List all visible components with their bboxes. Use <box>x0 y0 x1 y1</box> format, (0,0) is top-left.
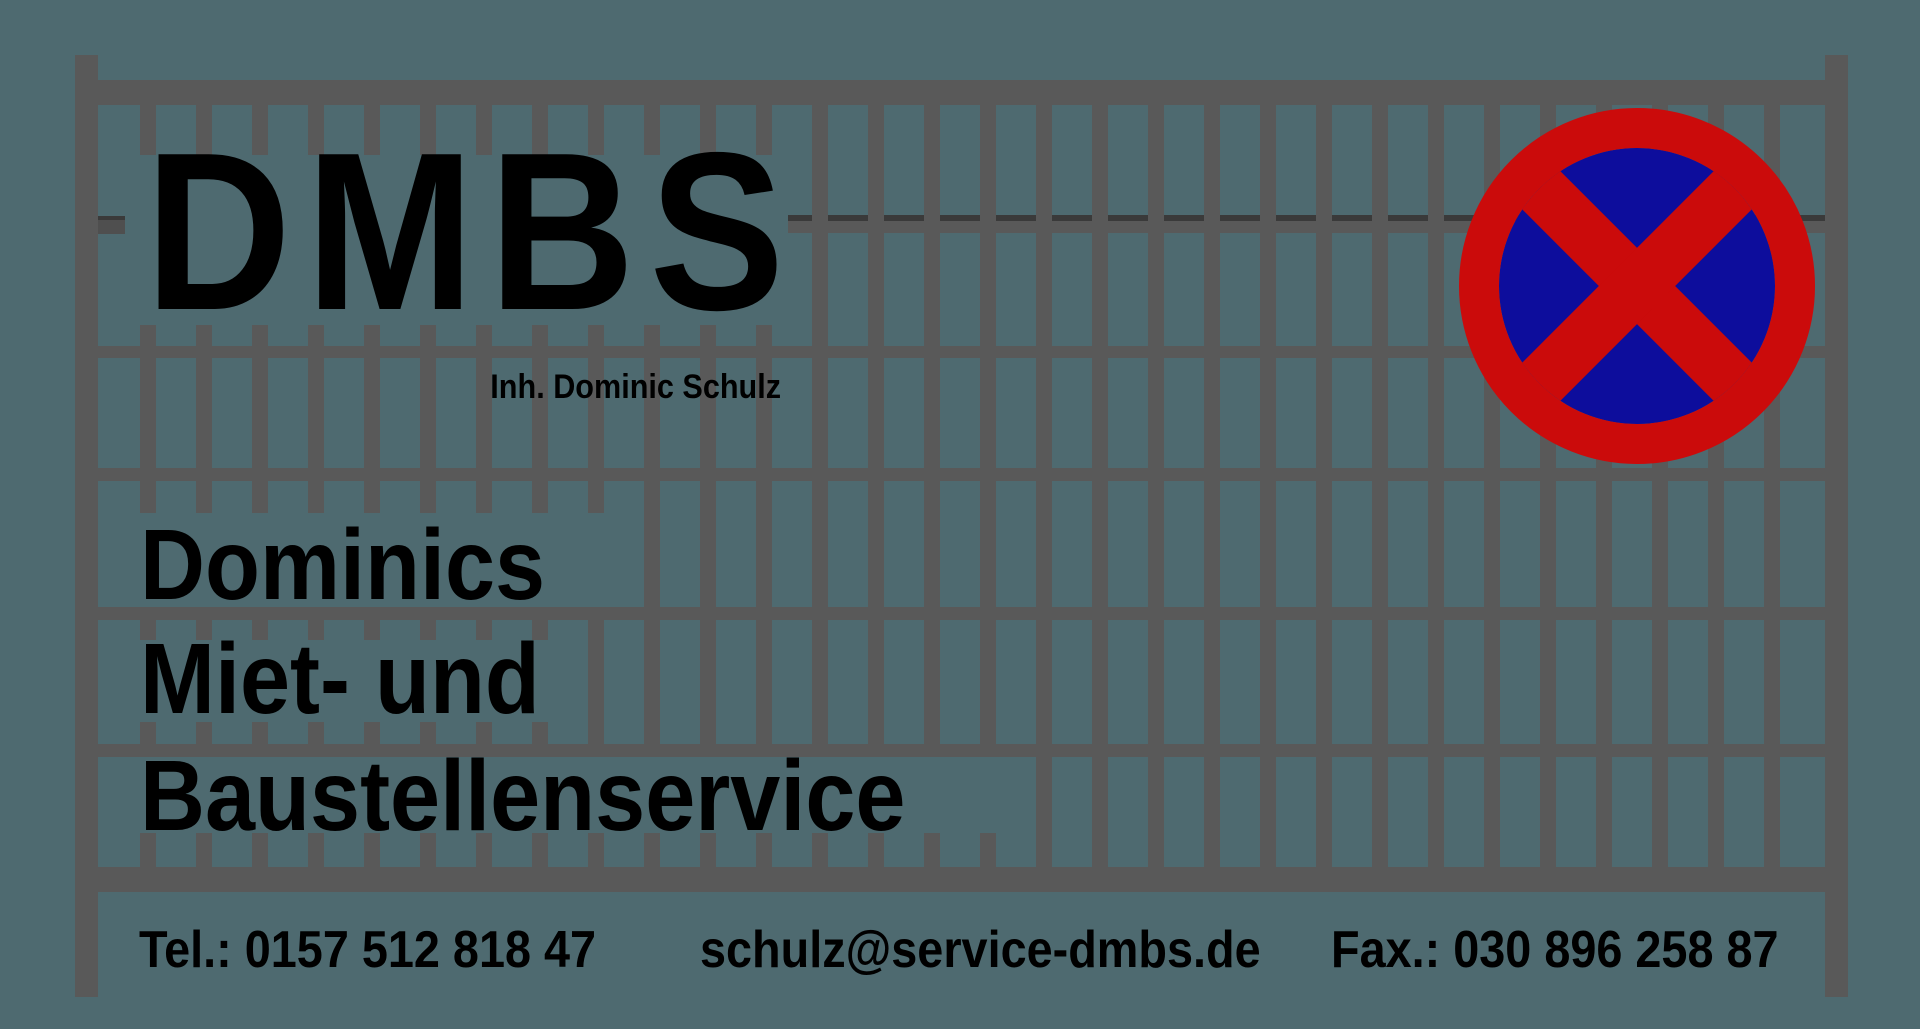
fence-picket <box>1316 105 1332 233</box>
fence-picket <box>1316 481 1332 620</box>
fence-picket <box>1260 481 1276 620</box>
fax-number: Fax.: 030 896 258 87 <box>1331 924 1779 976</box>
fence-picket <box>812 358 828 481</box>
fence-picket <box>1204 481 1220 620</box>
fence-picket <box>868 620 884 757</box>
fence-picket <box>1484 620 1500 757</box>
fence-picket <box>1092 105 1108 233</box>
fence-picket <box>1204 757 1220 892</box>
fence-picket <box>980 233 996 358</box>
fence-picket <box>1372 757 1388 892</box>
tagline-line-1: Dominics <box>140 515 545 615</box>
fence-picket <box>1764 757 1780 892</box>
fence-picket <box>756 481 772 620</box>
fence-picket <box>252 358 268 481</box>
fence-picket <box>1092 757 1108 892</box>
fence-post <box>75 55 98 997</box>
fence-picket <box>700 481 716 620</box>
fence-picket <box>924 833 940 892</box>
fence-picket <box>924 481 940 620</box>
fence-picket <box>1092 233 1108 358</box>
fence-picket <box>980 105 996 233</box>
fence-picket <box>644 620 660 757</box>
fence-picket <box>1316 358 1332 481</box>
fence-rail <box>75 80 1848 105</box>
tagline-line-2: Miet- und <box>140 629 540 729</box>
fence-picket <box>812 105 828 233</box>
fence-picket <box>868 358 884 481</box>
fence-picket <box>1484 757 1500 892</box>
fence-picket <box>140 358 156 481</box>
logo-canvas: DMBS Inh. Dominic Schulz Dominics Miet- … <box>0 0 1920 1029</box>
fence-picket <box>1540 757 1556 892</box>
fence-picket <box>196 358 212 481</box>
fence-picket <box>980 620 996 757</box>
fence-picket <box>1540 481 1556 620</box>
fence-picket <box>924 233 940 358</box>
fence-picket <box>1260 620 1276 757</box>
fence-picket <box>868 481 884 620</box>
fence-picket <box>1316 620 1332 757</box>
fence-picket <box>1148 105 1164 233</box>
fence-picket <box>1652 620 1668 757</box>
fence-picket <box>1148 757 1164 892</box>
fence-picket <box>1260 358 1276 481</box>
fence-picket <box>868 233 884 358</box>
fence-picket <box>1148 233 1164 358</box>
fence-picket <box>1428 620 1444 757</box>
fence-picket <box>1708 757 1724 892</box>
fence-picket <box>1092 358 1108 481</box>
fence-picket <box>1652 757 1668 892</box>
fence-picket <box>1204 620 1220 757</box>
owner-line: Inh. Dominic Schulz <box>490 370 781 404</box>
fence-picket <box>1260 105 1276 233</box>
fence-picket <box>1372 233 1388 358</box>
fence-picket <box>1540 620 1556 757</box>
fence-picket <box>1036 757 1052 892</box>
fence-picket <box>1428 105 1444 233</box>
fence-picket <box>1316 233 1332 358</box>
fence-picket <box>1428 757 1444 892</box>
fence-picket <box>1596 757 1612 892</box>
fence-picket <box>1428 481 1444 620</box>
fence-picket <box>1148 358 1164 481</box>
fence-picket <box>1372 481 1388 620</box>
fence-picket <box>644 481 660 620</box>
fence-picket <box>308 358 324 481</box>
fence-picket <box>1764 481 1780 620</box>
no-stopping-icon <box>1459 108 1815 464</box>
brand-name: DMBS <box>145 119 799 344</box>
fence-picket <box>812 481 828 620</box>
fence-picket <box>1372 620 1388 757</box>
post-bracket-edge <box>98 216 125 220</box>
fence-post <box>1825 55 1848 997</box>
fence-picket <box>980 833 996 892</box>
fence-picket <box>1204 233 1220 358</box>
fence-picket <box>1036 481 1052 620</box>
fence-picket <box>1316 757 1332 892</box>
fence-picket <box>700 620 716 757</box>
phone-number: Tel.: 0157 512 818 47 <box>139 924 596 976</box>
fence-picket <box>1372 105 1388 233</box>
fence-picket <box>364 358 380 481</box>
fence-picket <box>1092 620 1108 757</box>
fence-rail <box>75 867 1848 892</box>
fence-picket <box>812 620 828 757</box>
fence-picket <box>924 105 940 233</box>
fence-picket <box>1260 233 1276 358</box>
fence-picket <box>1092 481 1108 620</box>
fence-picket <box>1764 620 1780 757</box>
fence-picket <box>1036 233 1052 358</box>
fence-picket <box>1036 105 1052 233</box>
fence-picket <box>1036 358 1052 481</box>
fence-picket <box>1652 481 1668 620</box>
fence-picket <box>588 481 604 513</box>
fence-picket <box>812 233 828 358</box>
fence-picket <box>1204 105 1220 233</box>
fence-rail <box>98 468 1825 481</box>
fence-picket <box>1372 358 1388 481</box>
fence-picket <box>1148 620 1164 757</box>
fence-picket <box>1708 481 1724 620</box>
fence-picket <box>1148 481 1164 620</box>
fence-picket <box>1484 481 1500 620</box>
fence-picket <box>868 105 884 233</box>
fence-picket <box>1596 620 1612 757</box>
tagline-line-3: Baustellenservice <box>140 746 905 846</box>
fence-picket <box>1428 358 1444 481</box>
fence-picket <box>980 481 996 620</box>
email-address: schulz@service-dmbs.de <box>700 924 1261 976</box>
fence-picket <box>756 620 772 757</box>
fence-picket <box>1036 620 1052 757</box>
fence-picket <box>1428 233 1444 358</box>
fence-picket <box>588 620 604 757</box>
fence-picket <box>1260 757 1276 892</box>
fence-picket <box>1596 481 1612 620</box>
fence-picket <box>1708 620 1724 757</box>
fence-picket <box>924 358 940 481</box>
fence-picket <box>924 620 940 757</box>
fence-picket <box>1204 358 1220 481</box>
fence-picket <box>420 358 436 481</box>
fence-picket <box>980 358 996 481</box>
